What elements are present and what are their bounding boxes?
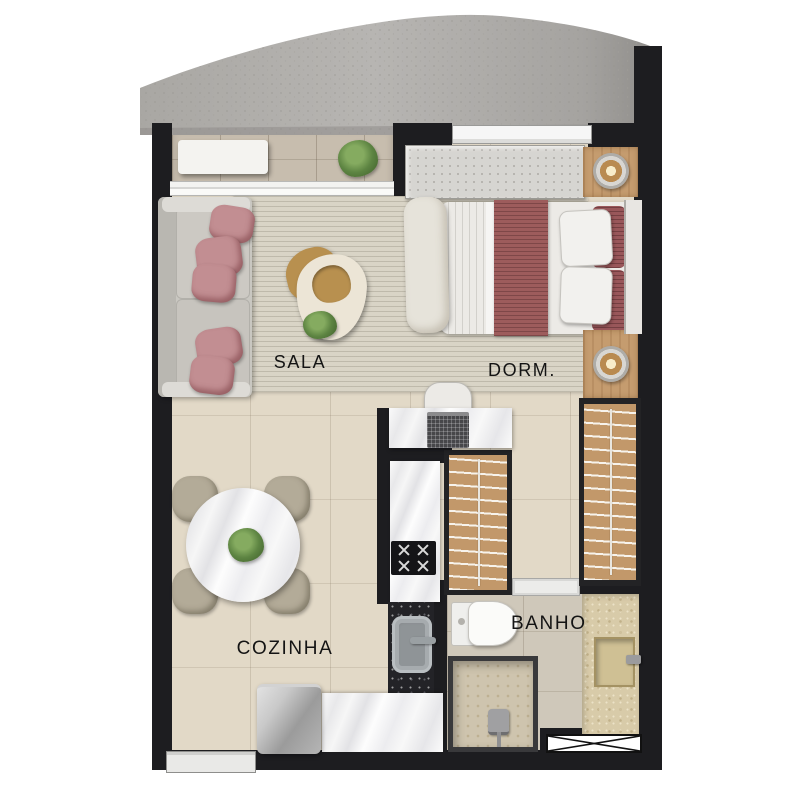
coffee-table-plant: [303, 311, 337, 339]
table-lamp: [593, 346, 629, 382]
bathroom-door: [512, 578, 580, 596]
bed-pillow-white: [559, 209, 614, 268]
sofa-pillow: [190, 262, 237, 304]
room-label-cozinha: COZINHA: [233, 638, 337, 660]
refrigerator: [257, 684, 321, 754]
bedroom-window: [452, 125, 592, 144]
bed-foot-bench: [403, 196, 450, 333]
shower-pipe: [497, 732, 501, 747]
shower: [448, 656, 538, 752]
table-lamp: [593, 153, 629, 189]
utility-shaft: [546, 734, 642, 753]
kitchen-sink: [392, 616, 432, 673]
room-label-dorm: DORM.: [472, 360, 572, 381]
niche-handle: [626, 655, 641, 664]
cooktop-burner: [416, 559, 430, 573]
coffee-table-inset: [311, 263, 353, 304]
sofa-back: [158, 197, 176, 397]
balcony-plant: [338, 140, 378, 177]
wardrobe: [579, 398, 641, 586]
laptop: [427, 412, 469, 448]
sofa-pillow: [188, 353, 236, 396]
room-label-sala: SALA: [255, 352, 345, 373]
sink-faucet: [410, 637, 436, 644]
cooktop-burner: [397, 559, 411, 573]
cooktop: [391, 541, 436, 575]
bed-headboard: [624, 200, 642, 334]
closet: [444, 450, 512, 595]
bed-pillow-white: [559, 266, 613, 325]
shower-niche-wall: [582, 594, 639, 745]
balcony-slab: [0, 0, 800, 135]
toilet-flush-button: [458, 618, 465, 625]
wardrobe-hangers: [584, 404, 636, 580]
cooktop-burner: [397, 543, 411, 557]
bed-runner: [494, 200, 548, 336]
kitchen-counter-lower: [322, 693, 443, 752]
dresser: [405, 145, 585, 199]
sliding-glass-door: [170, 181, 394, 196]
kitchen-counter-upper: [390, 461, 440, 602]
cooktop-burner: [416, 543, 430, 557]
wall-top-right: [588, 123, 638, 148]
closet-hangers: [449, 455, 507, 590]
entry-door: [166, 751, 256, 773]
dining-plant: [228, 528, 264, 562]
toilet: [451, 601, 515, 645]
floor-plan: SALA DORM. COZINHA: [0, 0, 800, 800]
balcony-bench: [178, 140, 268, 174]
room-label-banho: BANHO: [511, 613, 586, 635]
